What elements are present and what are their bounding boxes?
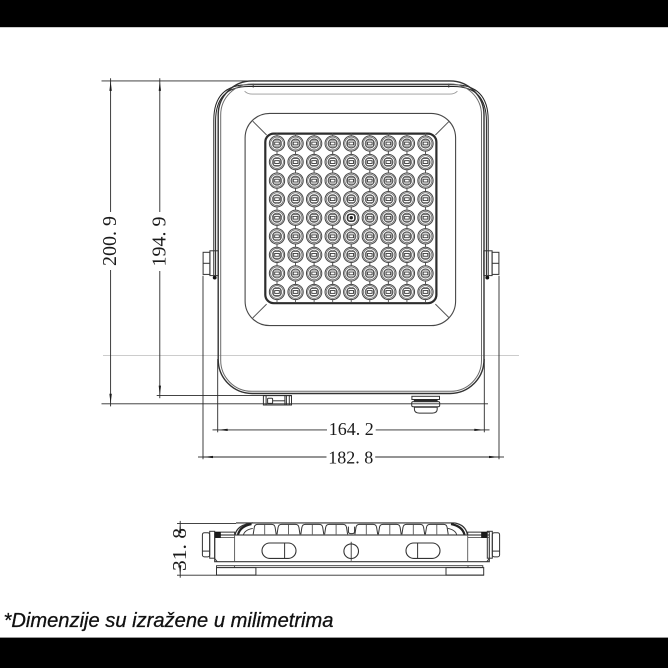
svg-text:182. 8: 182. 8 (328, 447, 373, 467)
svg-text:164. 2: 164. 2 (329, 419, 374, 439)
svg-text:194. 9: 194. 9 (149, 217, 171, 267)
svg-text:*Dimenzije su izražene u milim: *Dimenzije su izražene u milimetrima (4, 609, 334, 632)
svg-text:31. 8: 31. 8 (169, 528, 191, 571)
svg-text:200. 9: 200. 9 (99, 216, 121, 266)
